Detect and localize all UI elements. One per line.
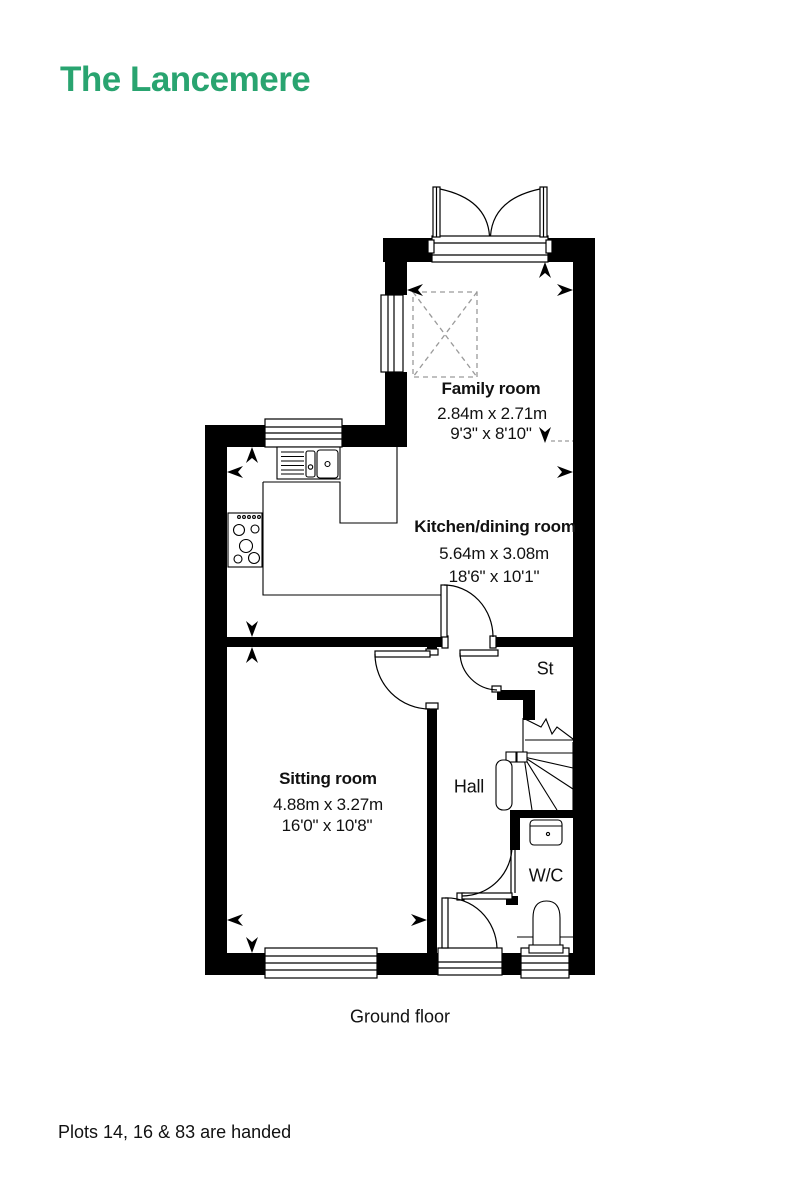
family-room-imperial: 9'3" x 8'10" xyxy=(450,424,531,444)
toilet xyxy=(529,901,563,953)
page-title: The Lancemere xyxy=(60,60,310,100)
kitchen-sink xyxy=(277,447,340,479)
front-door xyxy=(438,898,502,975)
family-room-window xyxy=(381,295,403,372)
sitting-room-label: Sitting room xyxy=(279,769,377,789)
sitting-room-door xyxy=(375,649,438,709)
storage-door xyxy=(460,650,501,692)
handrail xyxy=(496,760,512,810)
arrow-right-icon xyxy=(411,914,427,926)
sitting-room-window xyxy=(265,948,377,978)
arrow-down-icon xyxy=(539,427,551,443)
family-room-label: Family room xyxy=(442,379,541,399)
kitchen-label: Kitchen/dining room xyxy=(414,517,575,537)
arrow-up-icon xyxy=(246,447,258,463)
stairs xyxy=(496,718,577,810)
kitchen-imperial: 18'6" x 10'1" xyxy=(449,567,540,587)
arrow-left-icon xyxy=(227,466,243,478)
wc-label: W/C xyxy=(529,866,563,887)
arrow-down-icon xyxy=(246,621,258,637)
hob xyxy=(228,513,262,567)
kitchen-metric: 5.64m x 3.08m xyxy=(439,544,549,564)
arrow-up-icon xyxy=(539,262,551,278)
kitchen-window xyxy=(265,419,342,447)
sitting-room-metric: 4.88m x 3.27m xyxy=(273,795,383,815)
wc-basin xyxy=(530,820,562,845)
rooflight xyxy=(413,292,477,377)
french-doors xyxy=(428,187,552,262)
arrow-left-icon xyxy=(227,914,243,926)
arrow-up-icon xyxy=(246,647,258,663)
wc-door xyxy=(457,846,515,900)
hall-label: Hall xyxy=(454,777,484,798)
arrow-right-icon xyxy=(557,284,573,296)
storage-label: St xyxy=(537,659,554,680)
sitting-room-imperial: 16'0" x 10'8" xyxy=(282,816,373,836)
kitchen-door xyxy=(441,585,496,648)
arrow-right-icon xyxy=(557,466,573,478)
arrow-down-icon xyxy=(246,937,258,953)
family-room-metric: 2.84m x 2.71m xyxy=(437,404,547,424)
newel-post xyxy=(517,752,527,762)
footnote: Plots 14, 16 & 83 are handed xyxy=(58,1122,291,1143)
floor-label: Ground floor xyxy=(350,1007,450,1028)
